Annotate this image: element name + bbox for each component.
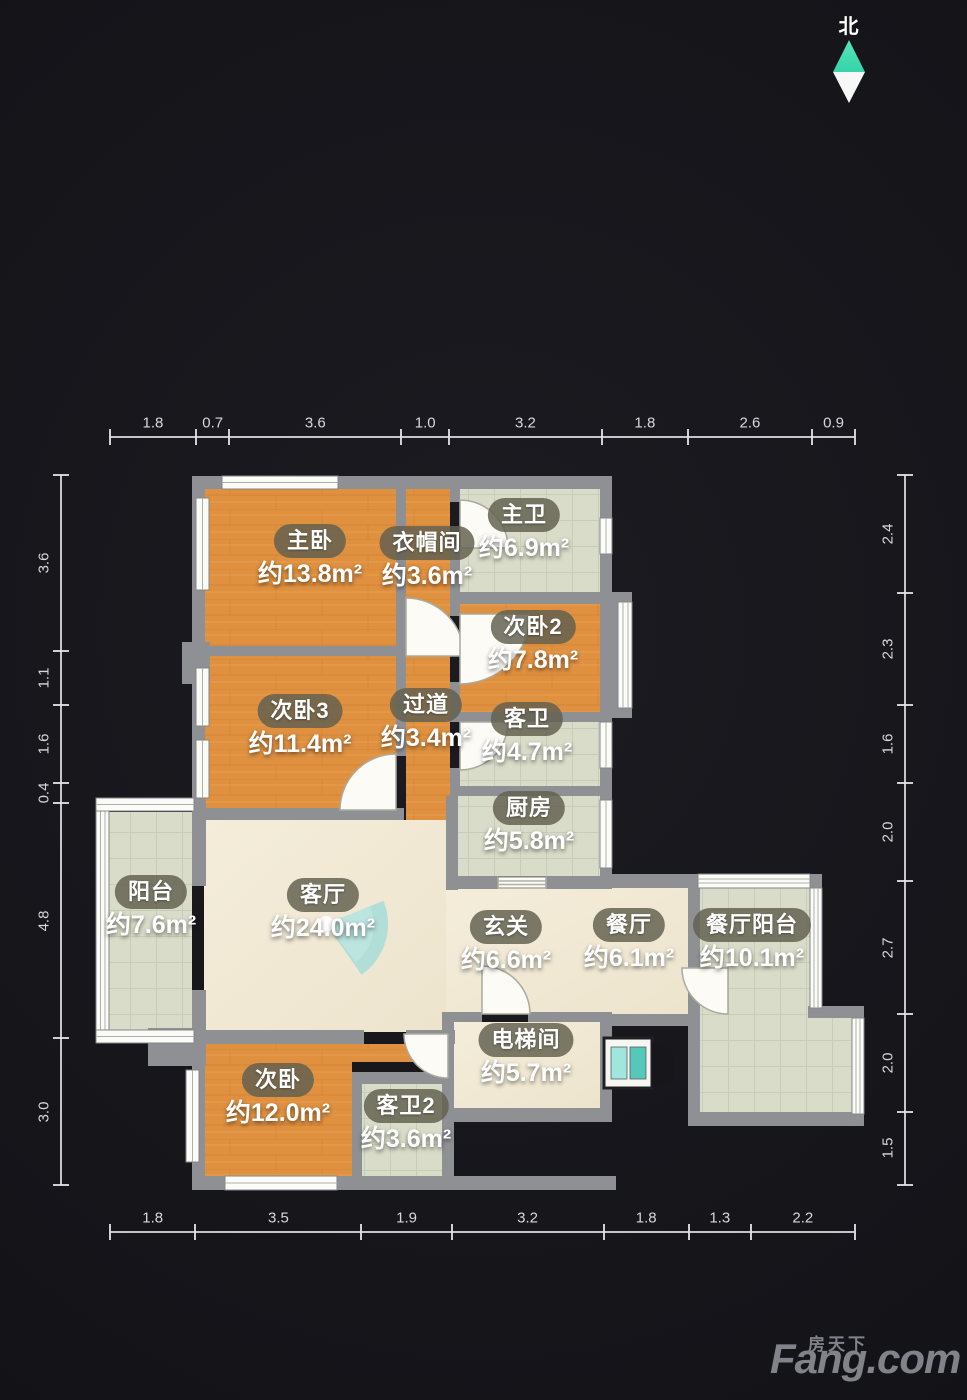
dim-label: 1.8 <box>142 1210 163 1227</box>
window-dining-balcony-top <box>698 874 810 888</box>
elevator-icon <box>604 1038 674 1088</box>
window-bedroom2 <box>618 602 632 708</box>
dim-line <box>110 1231 855 1233</box>
dim-tick <box>451 1224 453 1240</box>
dim-tick <box>400 429 402 445</box>
dim-tick <box>228 429 230 445</box>
dim-label: 3.2 <box>515 415 536 432</box>
dim-tick <box>687 429 689 445</box>
dim-tick <box>897 704 913 706</box>
window-bedroom-left <box>186 1070 199 1162</box>
dim-label: 3.2 <box>517 1210 538 1227</box>
window-balcony-top <box>96 798 194 811</box>
dim-tick <box>897 880 913 882</box>
dim-label v: 0.4 <box>36 783 53 804</box>
dim-label v: 2.3 <box>880 638 897 659</box>
window-bedroom3-left-b <box>196 740 209 798</box>
dim-label v: 4.8 <box>36 910 53 931</box>
dim-label v: 1.5 <box>880 1138 897 1159</box>
dim-tick <box>53 782 69 784</box>
dim-label: 1.8 <box>636 1210 657 1227</box>
floor-plan <box>0 0 967 1400</box>
dim-tick <box>109 1224 111 1240</box>
dim-tick <box>53 802 69 804</box>
dim-label v: 2.4 <box>880 523 897 544</box>
window-bedroom-bottom <box>225 1176 337 1190</box>
dim-label: 1.9 <box>396 1210 417 1227</box>
window-kitchen <box>600 800 612 868</box>
dim-tick <box>897 1184 913 1186</box>
dim-line <box>904 475 906 1185</box>
floor-balcony <box>108 812 192 1032</box>
floor-master-bedroom <box>204 488 396 648</box>
door-bedroom <box>404 1034 448 1078</box>
dim-label: 3.6 <box>305 415 326 432</box>
dim-tick <box>897 782 913 784</box>
floor-guest-bath2 <box>362 1084 442 1176</box>
dim-tick <box>448 429 450 445</box>
floor-kitchen <box>458 796 600 876</box>
dim-label v: 3.6 <box>36 553 53 574</box>
dim-tick <box>811 429 813 445</box>
dim-label: 1.8 <box>143 415 164 432</box>
window-dining-balcony-lower-right <box>852 1018 864 1114</box>
dim-label v: 1.6 <box>36 734 53 755</box>
dim-tick <box>53 1037 69 1039</box>
dim-tick <box>601 429 603 445</box>
dim-tick <box>53 474 69 476</box>
floor-bedroom <box>204 1044 352 1176</box>
dim-label v: 1.1 <box>36 668 53 689</box>
north-indicator: 北 <box>827 10 871 110</box>
window-dining-balcony-right <box>810 888 822 1008</box>
dim-line <box>110 436 855 438</box>
dim-tick <box>688 1224 690 1240</box>
dim-label: 1.0 <box>415 415 436 432</box>
dim-tick <box>195 429 197 445</box>
fang-watermark-en: Fang.com <box>770 1338 960 1380</box>
dim-line <box>60 475 62 1185</box>
floorplan-page: 主卧约13.8m²衣帽间约3.6m²主卫约6.9m²次卧2约7.8m²次卧3约1… <box>0 0 967 1400</box>
floor-dining-balcony-lower <box>698 1008 852 1112</box>
dim-tick <box>897 474 913 476</box>
dim-label v: 2.0 <box>880 822 897 843</box>
dim-label v: 1.6 <box>880 734 897 755</box>
window-balcony-left <box>96 810 109 1034</box>
window-master-bath <box>600 518 612 554</box>
north-arrow-icon <box>827 39 871 105</box>
dim-tick <box>109 429 111 445</box>
fang-watermark: 房天下 Fang.com <box>770 1330 960 1394</box>
dim-label: 0.9 <box>823 415 844 432</box>
dim-label: 3.5 <box>268 1210 289 1227</box>
kitchen-sliding-door <box>498 877 546 888</box>
dim-label v: 2.7 <box>880 937 897 958</box>
window-balcony-bottom <box>96 1030 194 1043</box>
dim-label v: 2.0 <box>880 1052 897 1073</box>
dim-tick <box>194 1224 196 1240</box>
window-guest-bath <box>600 722 612 768</box>
north-label: 北 <box>827 10 871 39</box>
dim-label: 2.6 <box>739 415 760 432</box>
dim-tick <box>897 1013 913 1015</box>
dim-tick <box>53 704 69 706</box>
dim-label: 1.3 <box>709 1210 730 1227</box>
window-master-left <box>196 498 209 590</box>
dim-label: 2.2 <box>792 1210 813 1227</box>
dim-label: 1.8 <box>634 415 655 432</box>
dim-tick <box>854 429 856 445</box>
floor-elevator-hall <box>454 1022 600 1108</box>
dim-tick <box>360 1224 362 1240</box>
dim-tick <box>750 1224 752 1240</box>
dim-tick <box>53 1184 69 1186</box>
dim-label v: 3.0 <box>36 1101 53 1122</box>
dim-tick <box>854 1224 856 1240</box>
window-bedroom3-left-a <box>196 668 209 726</box>
dim-tick <box>897 592 913 594</box>
dim-tick <box>897 1111 913 1113</box>
dim-label: 0.7 <box>202 415 223 432</box>
room-floors <box>108 488 852 1176</box>
window-master-top <box>222 476 338 489</box>
dim-tick <box>53 650 69 652</box>
dim-tick <box>603 1224 605 1240</box>
